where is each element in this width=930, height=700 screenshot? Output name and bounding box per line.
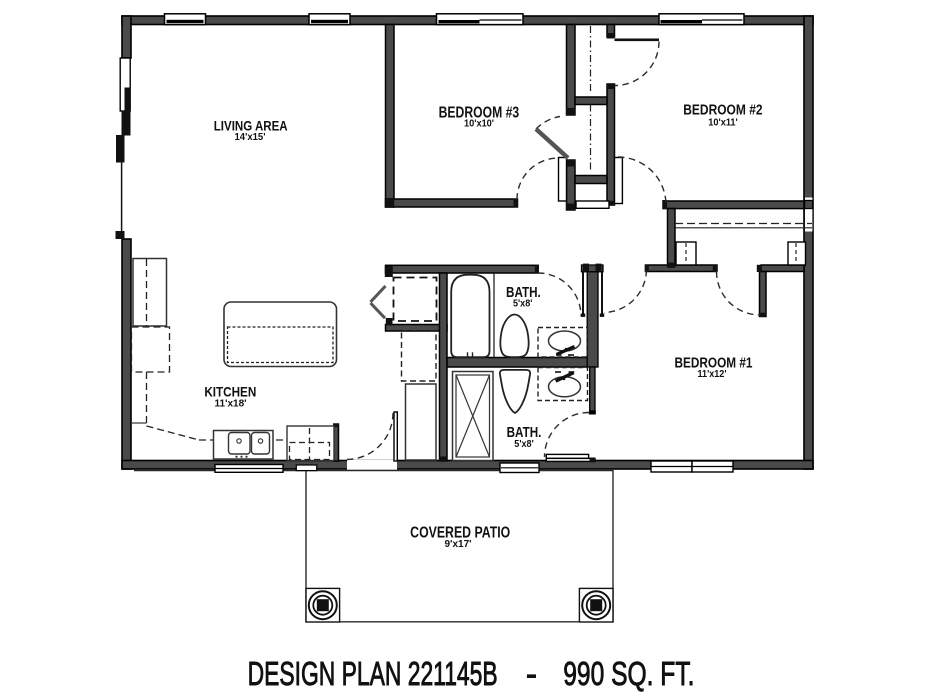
svg-text:KITCHEN: KITCHEN [204,383,256,399]
svg-text:5'x8': 5'x8' [513,298,532,310]
svg-text:9'x17': 9'x17' [444,539,471,550]
svg-text:10'x10': 10'x10' [464,118,494,129]
svg-text:11'x18': 11'x18' [214,399,246,410]
svg-text:990 SQ. FT.: 990 SQ. FT. [563,655,694,693]
svg-text:5'x8': 5'x8' [514,439,533,451]
svg-text:14'x15': 14'x15' [235,132,266,143]
svg-text:11'x12': 11'x12' [698,369,727,381]
svg-text:-: - [526,656,537,693]
svg-text:10'x11': 10'x11' [708,117,737,128]
svg-text:DESIGN PLAN 221145B: DESIGN PLAN 221145B [248,656,498,693]
svg-text:BEDROOM #2: BEDROOM #2 [683,101,763,118]
